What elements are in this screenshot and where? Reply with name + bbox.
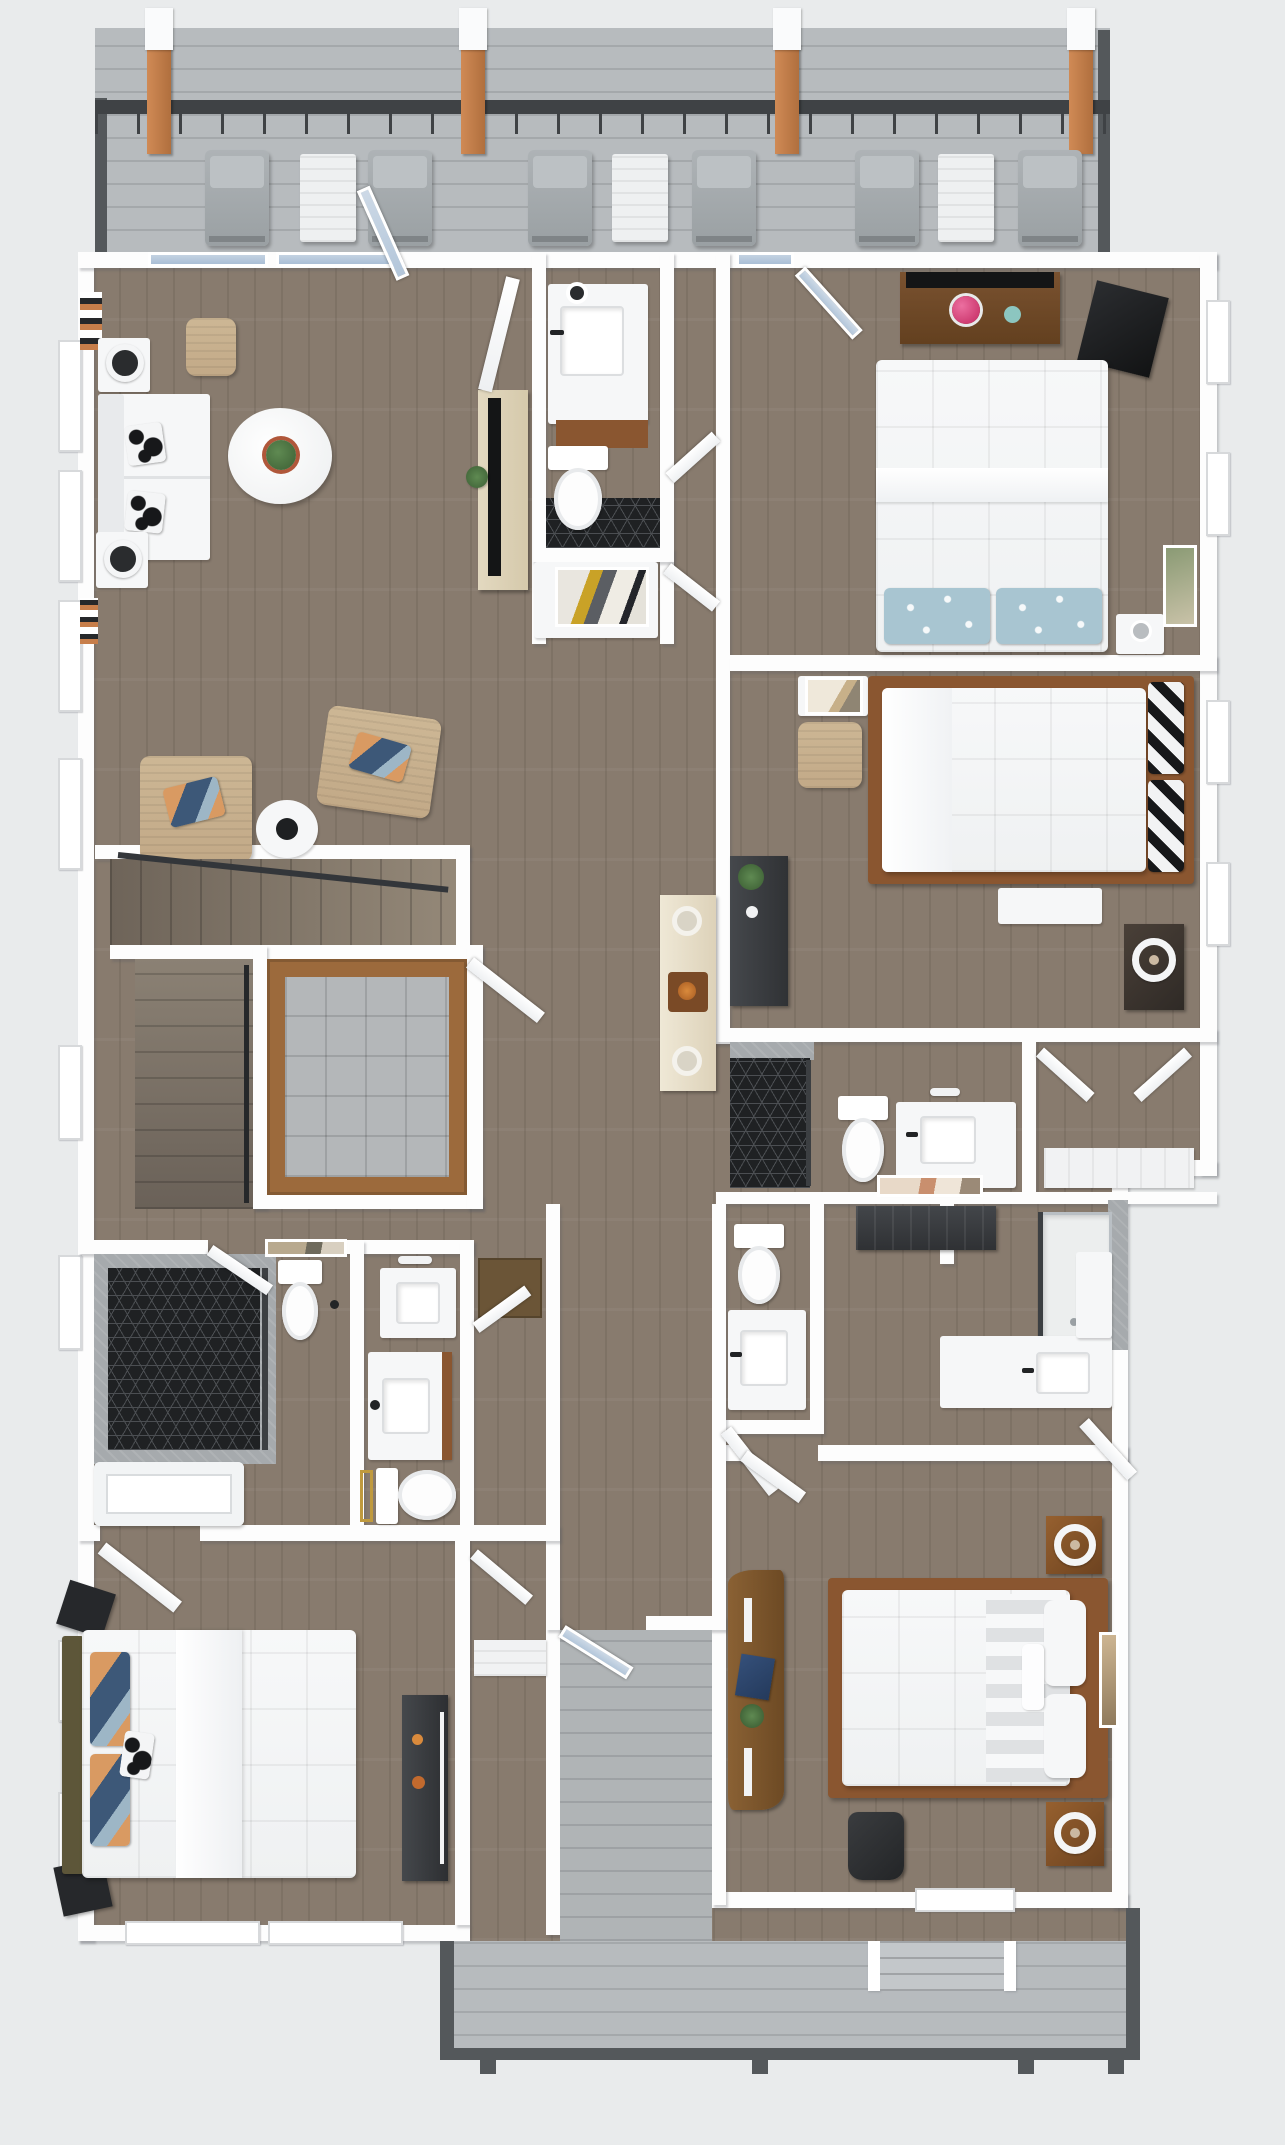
- ensuite-toilet-tank: [838, 1096, 888, 1120]
- window-living-2: [58, 470, 82, 582]
- bath1-toilet-bowl: [554, 468, 602, 530]
- teal-cup: [1004, 306, 1021, 323]
- deck-railing: [95, 100, 1110, 114]
- bed2-pouf: [798, 722, 862, 788]
- wall-halfbath-hall: [810, 1204, 824, 1420]
- pergola-post-cap: [1067, 8, 1095, 50]
- halfbath-sink: [740, 1330, 788, 1386]
- bed2-dresser-plant: [738, 864, 764, 890]
- midbath-sink-1: [396, 1282, 440, 1324]
- porch-steps: [880, 1941, 1004, 1991]
- master-lumbar-pillow: [1022, 1644, 1044, 1710]
- midbath-gold-mirror: [360, 1470, 373, 1522]
- ensuite-toilet-bowl: [842, 1118, 884, 1182]
- deck-lounge-chair: [855, 150, 919, 246]
- wall-bath1-hall: [660, 252, 674, 644]
- porch-post-1: [480, 2052, 496, 2074]
- leftbath-tp-holder: [330, 1300, 339, 1309]
- master-desk-papers-1: [744, 1598, 752, 1642]
- hall-art: [880, 1178, 980, 1194]
- deck-railing-pickets: [95, 114, 1110, 134]
- master-pillow-1: [1044, 1600, 1086, 1686]
- mbath-shower-glass: [1038, 1212, 1043, 1340]
- exterior-mask-right: [1128, 1174, 1285, 1949]
- stairs-lower-flight: [135, 959, 253, 1209]
- wall-ensuite-closet: [1022, 1042, 1036, 1192]
- console-candle-1: [672, 906, 702, 936]
- deck-side-table: [612, 154, 668, 242]
- abstract-art: [558, 570, 646, 624]
- mbath-faucet: [1022, 1368, 1034, 1373]
- halfbath-toilet-tank: [734, 1224, 784, 1248]
- wall-corridor-right: [712, 1204, 726, 1905]
- chairside-bowl: [276, 818, 298, 840]
- bed1-corner-art: [1166, 548, 1194, 624]
- round-table-plant: [266, 440, 296, 470]
- bed1-nightstand-lamp: [1130, 620, 1152, 642]
- media-console: [478, 390, 528, 590]
- window-bed3-bottom-2: [268, 1921, 403, 1945]
- pergola-post-cap: [145, 8, 173, 50]
- ensuite-sink: [920, 1116, 976, 1164]
- wall-midbath-right: [460, 1240, 474, 1535]
- wall-walkway-top-b: [646, 1616, 726, 1630]
- midbath-faucet-cross: [370, 1400, 380, 1410]
- wall-bed2-baths: [716, 1028, 1217, 1042]
- bed2-striped-pillow-2: [1148, 780, 1184, 872]
- bed3-tv: [440, 1712, 444, 1864]
- mbath-vanity-return: [1076, 1252, 1112, 1338]
- master-pillow-2: [1044, 1694, 1086, 1778]
- ensuite-shower-glass: [806, 1060, 811, 1186]
- wall-closet-bottom: [253, 1195, 483, 1209]
- bath1-vanity-cabinet: [556, 420, 648, 448]
- wall-master-top-b: [818, 1445, 1128, 1461]
- porch-post-3: [1018, 2052, 1034, 2074]
- window-bed3-bottom-1: [125, 1921, 260, 1945]
- wall-walkway-top-a: [546, 1616, 560, 1630]
- deck-lounge-chair: [1018, 150, 1082, 246]
- pergola-post-cap: [459, 8, 487, 50]
- floor-plan: [0, 0, 1285, 2145]
- pergola-post: [1069, 44, 1093, 154]
- pergola-post-cap: [773, 8, 801, 50]
- window-bed1-right-1: [1206, 300, 1230, 384]
- deck-side-table: [938, 154, 994, 242]
- sofa-seam: [124, 476, 210, 479]
- bookshelf-left: [80, 598, 98, 644]
- pergola-post: [775, 44, 799, 154]
- bed1-desk-tv: [906, 272, 1054, 288]
- bed3-duvet-fold: [176, 1630, 242, 1878]
- porch-step-stringer-right: [1004, 1941, 1016, 1991]
- ensuite-hex-shower: [730, 1058, 810, 1188]
- leftbath-toilet-bowl: [282, 1282, 318, 1340]
- bath1-toilet-tank: [548, 446, 608, 470]
- master-ring-lamp-south: [1054, 1812, 1096, 1854]
- bed3-console-decor-2: [412, 1776, 425, 1789]
- bed1-entry-sidelight: [736, 252, 794, 267]
- deck-side-table: [300, 154, 356, 242]
- bed2-foot-bench: [998, 888, 1102, 924]
- bottom-closet-shelf: [474, 1640, 546, 1676]
- master-wall-art: [1102, 1635, 1116, 1725]
- plant-stand-living: [466, 466, 488, 488]
- sofa-pillow-2: [124, 490, 166, 534]
- window-bed2-right-2: [1206, 862, 1230, 946]
- towel-ring: [566, 282, 588, 304]
- midbath-vanity-2-cabinet: [442, 1352, 452, 1460]
- master-desk-papers-2: [744, 1748, 752, 1796]
- window-living-1: [58, 340, 82, 452]
- living-tv: [488, 398, 501, 576]
- midbath-sconce: [398, 1256, 432, 1264]
- bed2-dresser-decor: [746, 906, 758, 918]
- leftbath-tub: [94, 1462, 244, 1526]
- bed3-pillow-1: [90, 1652, 130, 1746]
- porch-decking: [440, 1941, 1140, 2059]
- wall-bed3-closet: [455, 1541, 470, 1925]
- mbath-sink: [1036, 1352, 1090, 1394]
- bed1-pillow-1: [884, 588, 990, 644]
- ensuite-faucet: [906, 1132, 918, 1137]
- leftbath-hex-shower: [108, 1268, 260, 1450]
- master-laptop: [735, 1654, 775, 1701]
- leftbath-toilet-tank: [278, 1260, 322, 1284]
- window-bed2-right-1: [1206, 700, 1230, 784]
- bath1-faucet: [550, 330, 564, 335]
- bed2-striped-pillow-1: [1148, 682, 1184, 774]
- bed2-leaning-art: [808, 680, 860, 712]
- window-stair: [58, 1045, 82, 1140]
- globe-lamp-north: [106, 344, 144, 382]
- stairs-handrail: [244, 965, 249, 1203]
- porch-post-2: [752, 2052, 768, 2074]
- pink-flowers: [952, 296, 980, 324]
- porch-step-stringer-left: [868, 1941, 880, 1991]
- porch-post-4: [1108, 2052, 1124, 2074]
- wall-bed1-bed2: [730, 655, 1217, 671]
- wall-leftbath-top-a: [78, 1240, 208, 1254]
- leftbath-art: [268, 1242, 344, 1254]
- bed1-pillow-2: [996, 588, 1102, 644]
- wall-closet-right: [467, 945, 483, 1209]
- window-bed1-right-2: [1206, 452, 1230, 536]
- wall-bed3-top-a: [78, 1525, 100, 1541]
- wall-corridor-left: [546, 1204, 560, 1935]
- midbath-toilet-bowl: [398, 1470, 456, 1520]
- bed3-cow-pillow: [119, 1730, 155, 1780]
- globe-lamp-south: [104, 540, 142, 578]
- living-slider-glass-2: [276, 252, 394, 267]
- bed1-sheet-fold: [876, 468, 1108, 502]
- pergola-post: [461, 44, 485, 154]
- midbath-toilet-tank: [376, 1468, 398, 1524]
- halfbath-faucet: [730, 1352, 742, 1357]
- elevator-closet-tile: [285, 977, 449, 1177]
- window-bath-left: [58, 1255, 82, 1350]
- walkway-decking: [560, 1630, 712, 1941]
- window-master-bottom: [915, 1888, 1015, 1912]
- halfbath-toilet-bowl: [738, 1246, 780, 1304]
- wall-hall-bedrooms: [716, 252, 730, 1044]
- bed3-console-decor-1: [412, 1734, 423, 1745]
- wall-lowerflight-right: [253, 945, 267, 1209]
- deck-lounge-chair: [692, 150, 756, 246]
- ensuite-sconce: [930, 1088, 960, 1096]
- wall-stairs-mid: [110, 945, 483, 959]
- master-office-chair: [848, 1812, 904, 1880]
- bath1-sink: [560, 306, 624, 376]
- closet-bed2-shelving: [1044, 1148, 1194, 1188]
- wall-stairs-right: [456, 845, 470, 959]
- leftbath-shower-glass: [262, 1268, 268, 1450]
- bed2-duvet-fold: [882, 688, 952, 872]
- midbath-sink-2: [382, 1378, 430, 1434]
- living-slider-glass-1: [148, 252, 268, 267]
- console-candle-2: [672, 1046, 702, 1076]
- deck-lounge-chair: [528, 150, 592, 246]
- deck-edge-board-right: [1098, 30, 1110, 254]
- pergola-post: [147, 44, 171, 154]
- master-ring-lamp-north: [1054, 1524, 1096, 1566]
- bed3-headboard: [62, 1636, 84, 1874]
- hall-bench: [856, 1206, 996, 1250]
- console-tray-decor: [678, 982, 696, 1000]
- window-living-4: [58, 758, 82, 870]
- porch-edge-bottom: [440, 2048, 1140, 2060]
- sofa-pillow-1: [123, 422, 166, 467]
- pouf-living: [186, 318, 236, 376]
- window-living-3: [58, 600, 82, 712]
- porch-edge-right: [1126, 1908, 1140, 2060]
- deck-lounge-chair: [205, 150, 269, 246]
- bed2-ring-lamp: [1132, 938, 1176, 982]
- porch-edge-left: [440, 1941, 454, 2059]
- master-desk-plant: [740, 1704, 764, 1728]
- wall-bed3-top-b: [200, 1525, 560, 1541]
- wall-bath1-bottom: [532, 548, 674, 562]
